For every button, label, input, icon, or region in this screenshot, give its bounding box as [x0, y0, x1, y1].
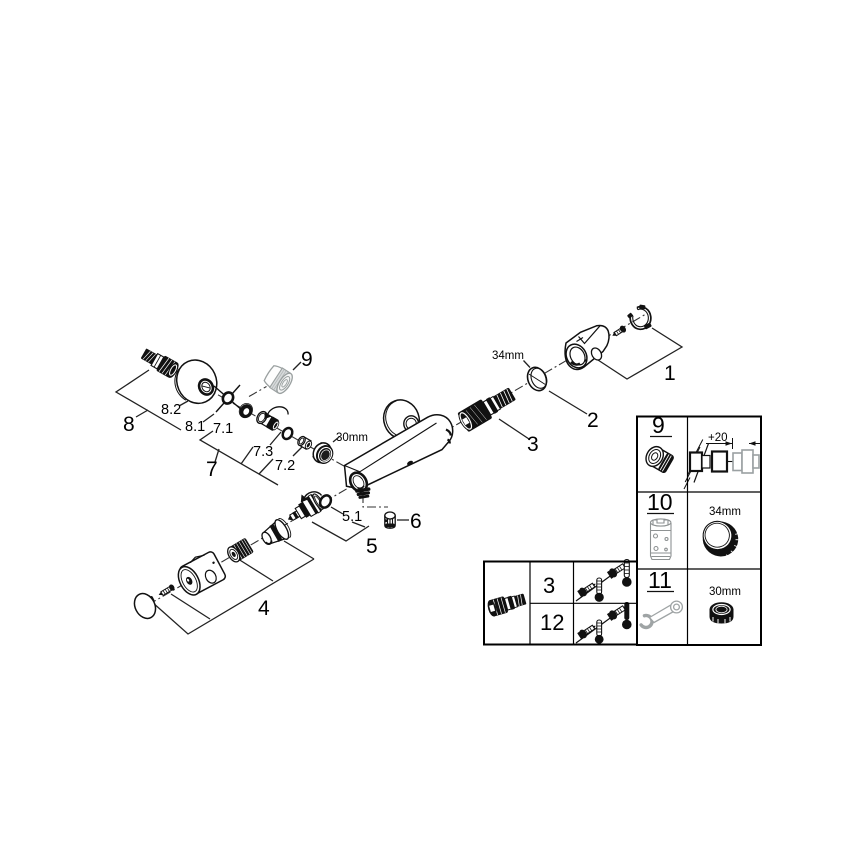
svg-text:10: 10	[647, 489, 673, 515]
svg-text:34mm: 34mm	[492, 350, 524, 362]
svg-text:5: 5	[366, 535, 378, 558]
svg-text:8.2: 8.2	[161, 402, 181, 418]
svg-text:3: 3	[543, 573, 555, 598]
svg-text:7.1: 7.1	[213, 421, 233, 437]
svg-text:7.3: 7.3	[253, 444, 273, 460]
svg-text:5.1: 5.1	[342, 509, 362, 525]
svg-text:30mm: 30mm	[709, 586, 741, 598]
svg-text:+20: +20	[708, 432, 728, 444]
svg-text:7: 7	[206, 458, 218, 481]
svg-text:6: 6	[410, 510, 422, 533]
svg-text:30mm: 30mm	[336, 432, 368, 444]
svg-text:4: 4	[258, 597, 270, 620]
svg-text:7.2: 7.2	[275, 458, 295, 474]
svg-text:2: 2	[587, 409, 599, 432]
svg-text:11: 11	[648, 567, 672, 593]
svg-text:1: 1	[664, 362, 676, 385]
svg-text:3: 3	[527, 433, 539, 456]
svg-text:8: 8	[123, 413, 135, 436]
svg-text:34mm: 34mm	[709, 506, 741, 518]
svg-text:9: 9	[652, 412, 665, 438]
svg-text:8.1: 8.1	[185, 419, 205, 435]
svg-text:12: 12	[540, 610, 564, 635]
svg-text:9: 9	[301, 348, 313, 371]
